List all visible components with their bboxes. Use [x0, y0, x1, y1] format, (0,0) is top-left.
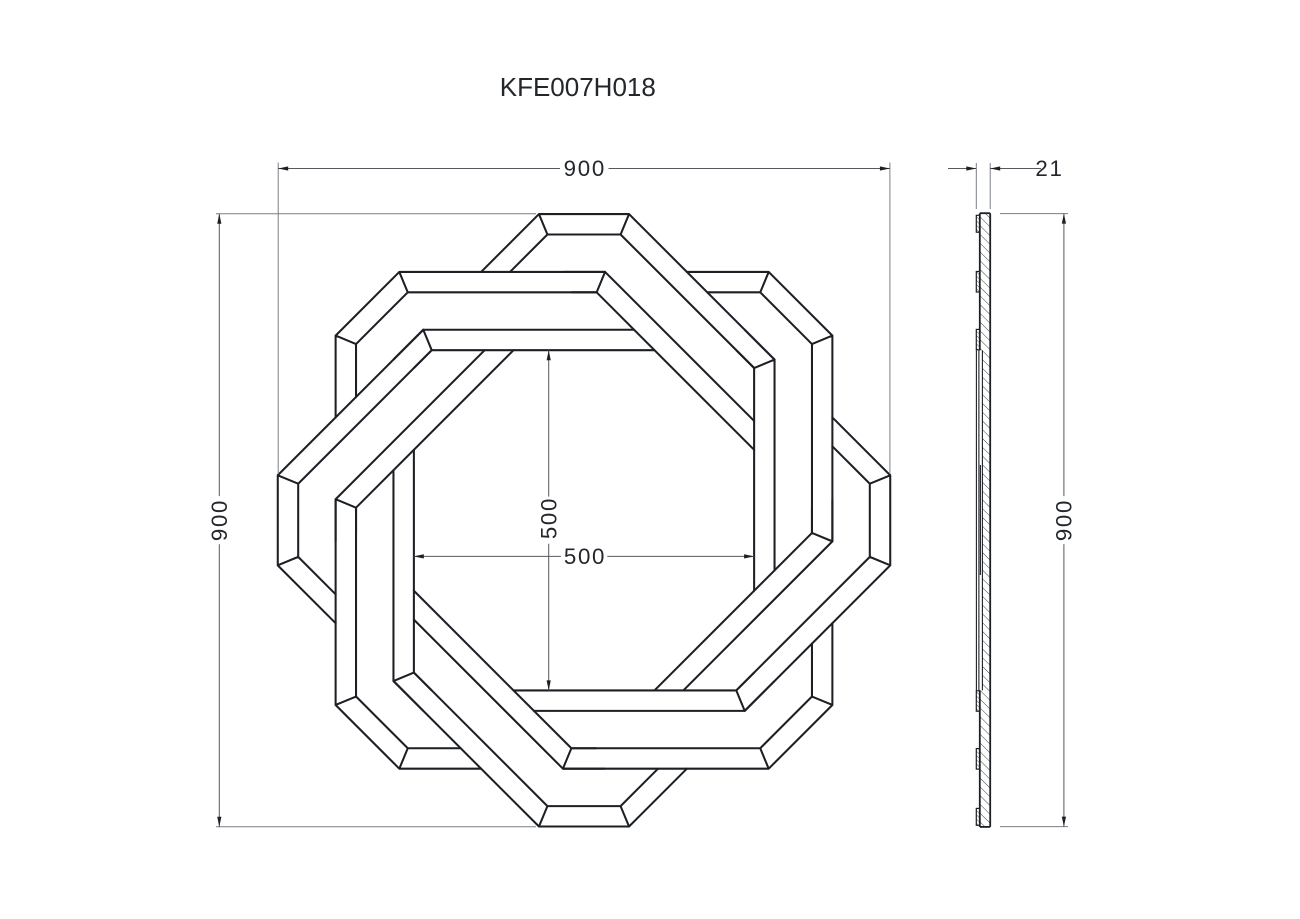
- svg-text:21: 21: [1035, 156, 1063, 181]
- svg-text:500: 500: [564, 544, 606, 569]
- svg-text:KFE007H018: KFE007H018: [500, 72, 656, 102]
- svg-text:900: 900: [1052, 499, 1077, 541]
- svg-text:900: 900: [564, 156, 606, 181]
- svg-text:500: 500: [536, 497, 561, 539]
- svg-text:900: 900: [207, 499, 232, 541]
